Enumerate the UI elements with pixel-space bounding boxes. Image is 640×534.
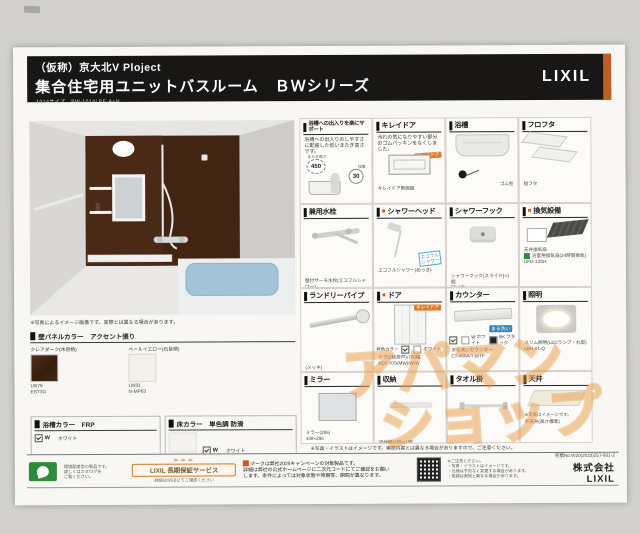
product-cell-entry-support: 浴槽への出入りを楽にサポート 浴槽への出入りのしやすさに配慮した低いまたぎ高さで… bbox=[299, 118, 372, 204]
lid-panel bbox=[521, 132, 568, 148]
product-cell-kirei-door-feature: キレイドア 汚れの気になりやすい部分のゴムパッキンをなくしました。 キレイドア … bbox=[372, 117, 445, 203]
product-code: UFD-13SH bbox=[524, 258, 587, 264]
faucet-knob bbox=[345, 228, 352, 235]
counter-image: まる洗い bbox=[451, 309, 514, 333]
wall-panel-section: 壁パネルカラー アクセント張り クレアダーク(木目柄) LW76 EST3G ベ… bbox=[30, 330, 295, 396]
pipe-shape bbox=[309, 313, 365, 328]
header-bar-icon bbox=[523, 207, 526, 216]
vent-unit-shape bbox=[527, 228, 547, 242]
campaign-line: します。条件によっては対象状態や時期等、期間が異なります。 bbox=[243, 474, 409, 481]
product-code: 438×295 bbox=[306, 435, 369, 441]
shower-head-image: エコフル シャワー bbox=[378, 220, 441, 266]
product-caption: エコフルシャワー(めっき) bbox=[378, 267, 441, 273]
header-bar-icon bbox=[304, 376, 307, 385]
page-background: { "header": { "project": "（仮称）京大北V Ploje… bbox=[0, 0, 640, 534]
ventilation-image bbox=[524, 220, 587, 246]
product-cell-laundry-pipe: ランドリーパイプ (メッキ) LAP-MM2-W (W1本) bbox=[300, 288, 373, 372]
render-caption: ※写真によるイメージ画像です。実際とは異なる場合があります。 bbox=[30, 318, 295, 326]
product-title: 浴槽への出入りを楽にサポート bbox=[308, 121, 368, 133]
product-title: 兼用水栓 bbox=[309, 207, 337, 217]
accent-label: クレアダーク(木目柄) bbox=[30, 346, 110, 353]
accent-swatch-item: クレアダーク(木目柄) LW76 EST3G bbox=[30, 346, 110, 396]
mirror-shape bbox=[318, 393, 356, 421]
kirei-door-badge: キレイドア bbox=[414, 304, 441, 310]
door-panel bbox=[410, 306, 425, 344]
product-title: シャワーフック bbox=[455, 206, 503, 216]
product-title: 照明 bbox=[528, 290, 542, 300]
product-title: ランドリーパイプ bbox=[309, 291, 364, 301]
product-caption: ゴム栓 bbox=[451, 181, 514, 187]
faucet-knob bbox=[311, 232, 318, 239]
floor-color-heading: 床カラー 単色調 防滑 bbox=[177, 418, 244, 428]
faucet-image bbox=[305, 231, 368, 277]
product-title: 天井 bbox=[528, 374, 542, 384]
header-bar-icon bbox=[304, 208, 307, 217]
warranty-label: LIXIL 長期保証サービス bbox=[132, 463, 236, 476]
checkbox-icon bbox=[401, 346, 409, 354]
product-cell-light: 照明 スリム照明(LEDランプ・丸型) LBH-01-Q bbox=[519, 287, 592, 371]
light-plate bbox=[536, 305, 576, 333]
shower-hook-image bbox=[451, 226, 514, 272]
tub-color-label: ホワイト bbox=[58, 435, 77, 442]
vent-fan-shape bbox=[547, 219, 589, 238]
warranty-badge: ≫≫≫ LIXIL 長期保証サービス 詳細はWEBにてご確認ください bbox=[132, 458, 236, 483]
header-bar-icon bbox=[376, 121, 379, 130]
product-caption: 浴室用換気扇(24時間換気) bbox=[532, 253, 586, 259]
white-swatch bbox=[413, 346, 421, 354]
header-bar-icon bbox=[449, 121, 452, 130]
product-title: シャワーヘッド bbox=[387, 206, 435, 216]
eco-mark-logo bbox=[29, 462, 57, 481]
base-swatch bbox=[128, 354, 156, 382]
ceiling-image bbox=[525, 390, 588, 412]
product-code: LBH-01-Q bbox=[524, 345, 587, 351]
frame-color-value: ホワイト bbox=[423, 346, 441, 352]
header-bar: （仮称）京大北V Ploject 集合住宅用ユニットバスルーム ＢＷシリーズ 1… bbox=[27, 54, 611, 103]
shower-hook bbox=[201, 154, 207, 160]
step-30-badge: 30 bbox=[349, 169, 364, 184]
base-label: ベールイエロー(石目柄) bbox=[128, 345, 208, 352]
product-cell-counter: カウンター まる洗い W ホワイト BK ブラック まる洗いカウンター CT-4… bbox=[446, 287, 519, 371]
campaign-marker-icon: ■ bbox=[528, 208, 532, 214]
ceiling-note: ※写真はイメージです。 bbox=[525, 412, 588, 418]
door-section-diagram bbox=[388, 155, 430, 175]
spec-sheet: （仮称）京大北V Ploject 集合住宅用ユニットバスルーム ＢＷシリーズ 1… bbox=[13, 45, 627, 506]
product-caption: スリム照明(LEDランプ・丸型) bbox=[524, 340, 587, 346]
shelf-lower bbox=[90, 211, 112, 214]
storage-shelf-shape bbox=[389, 403, 431, 408]
product-body: 浴槽への出入りのしやすさに配慮した低いまたぎ高さです。 bbox=[304, 137, 367, 155]
hook-shape bbox=[469, 226, 495, 242]
product-caption: キレイドア断面図 bbox=[378, 185, 441, 191]
product-title: 換気設備 bbox=[533, 206, 561, 216]
grid-disclaimer: ※写真・イラストはイメージです。実際内容とは異なる場合がありますので、ご注意くだ… bbox=[311, 444, 593, 452]
light-image bbox=[524, 305, 587, 339]
product-cell-ceiling: 天井 ※写真はイメージです。 平天井(高さ標準) bbox=[519, 371, 592, 443]
frame-color-label: 枠色カラー bbox=[376, 347, 398, 353]
scan-artifact bbox=[24, 6, 40, 14]
header-bar-icon bbox=[377, 291, 380, 300]
warranty-sub: 詳細はWEBにてご確認ください bbox=[132, 477, 236, 483]
product-title: フロフタ bbox=[527, 120, 555, 130]
product-caption: 平天井(高さ標準) bbox=[525, 419, 588, 425]
door-image: キレイドア bbox=[378, 304, 441, 344]
entry-support-diagram: またぎ高さ 450 段差 30 bbox=[304, 157, 367, 197]
product-caption: シャワーフック(スライド)×1個 bbox=[451, 273, 514, 284]
plug-cord bbox=[466, 170, 479, 176]
matagi-450-badge: 450 bbox=[306, 159, 325, 174]
kirei-door-diagram: キレイドア bbox=[377, 154, 440, 184]
footer-note-line: ・色調は実物と異なる場合があります。 bbox=[447, 474, 538, 479]
pipe-flange bbox=[354, 308, 370, 324]
header-bar-icon bbox=[450, 375, 453, 384]
quote-number: 見積No.W20(2023)257-801-2 bbox=[545, 453, 614, 459]
accent-code2: EST3G bbox=[31, 390, 111, 396]
project-name: （仮称）京大北V Ploject bbox=[35, 58, 611, 76]
counter-white-label: W ホワイト bbox=[471, 334, 487, 346]
product-cell-ventilation: ■ 換気設備 天井換気扇 浴室用換気扇(24時間換気) UFD-13SH bbox=[519, 203, 592, 287]
footer: 環境配慮型の製品です。 詳しくはカタログを ご覧ください。 ≫≫≫ LIXIL … bbox=[27, 452, 619, 489]
bath-lid-image bbox=[523, 134, 586, 180]
product-title: 収納 bbox=[382, 375, 396, 385]
eco-note-line: ご覧ください。 bbox=[64, 473, 125, 478]
product-title: カウンター bbox=[455, 290, 489, 300]
qr-code bbox=[416, 457, 440, 481]
product-cell-shower-hook: シャワーフック シャワーフック(スライド)×1個 SF-HB bbox=[446, 203, 519, 287]
maruarai-badge: まる洗い bbox=[489, 325, 512, 332]
white-swatch bbox=[461, 336, 469, 344]
product-title: ドア bbox=[388, 291, 402, 301]
header-bar-icon bbox=[303, 123, 306, 132]
lixil-logo: LIXIL bbox=[542, 68, 591, 86]
eco-green-icon bbox=[524, 253, 530, 259]
counter-ledge bbox=[88, 255, 172, 262]
product-title: キレイドア bbox=[381, 121, 415, 131]
campaign-line: マークは弊社2025キャンペーンの対象製品です。 bbox=[250, 462, 358, 467]
shower-handle bbox=[394, 230, 402, 258]
counter-black-label: BK ブラック bbox=[499, 334, 516, 346]
campaign-marker-icon: ■ bbox=[382, 209, 386, 215]
campaign-note: マークは弊社2025キャンペーンの対象製品です。 詳細は弊社の公式ホームページに… bbox=[243, 460, 409, 481]
light-bulb bbox=[543, 311, 569, 327]
heading-square-icon bbox=[30, 332, 35, 340]
checkbox-icon bbox=[35, 434, 43, 442]
tub-color-heading: 浴槽カラー FRP bbox=[43, 419, 95, 429]
header-bar-icon bbox=[523, 375, 526, 384]
product-cell-shower-head: ■ シャワーヘッド エコフル シャワー エコフルシャワー(めっき) bbox=[373, 203, 446, 287]
door-panel bbox=[395, 306, 411, 344]
ceiling-light bbox=[112, 141, 134, 157]
wall-panel-heading: 壁パネルカラー アクセント張り bbox=[38, 331, 135, 341]
orange-stripe bbox=[603, 54, 611, 100]
product-cell-storage: 収納 収納棚(2段)×1個 SF-10SB-23/N1 bbox=[373, 371, 446, 443]
person-figure bbox=[331, 173, 340, 193]
section-heading: 壁パネルカラー アクセント張り bbox=[30, 330, 295, 343]
header-bar-icon bbox=[304, 292, 307, 301]
product-title: 浴槽 bbox=[454, 120, 468, 130]
header-bar-icon bbox=[450, 291, 453, 300]
product-cell-door: ■ ドア キレイドア 枠色カラー ホワイト ドア(2枚折戸)/700幅 PDT-… bbox=[373, 287, 446, 371]
bottle bbox=[96, 203, 100, 211]
counter-shape bbox=[453, 308, 512, 322]
page-title: 集合住宅用ユニットバスルーム ＢＷシリーズ bbox=[35, 74, 611, 98]
product-cell-towel-bar: タオル掛 TB-450-N bbox=[446, 371, 519, 443]
product-body: 汚れの気になりやすい部分のゴムパッキンをなくしました。 bbox=[377, 134, 440, 152]
product-title: ミラー bbox=[309, 375, 330, 385]
campaign-marker-icon: ■ bbox=[382, 293, 386, 299]
product-cell-bath-lid: フロフタ 組フタ bbox=[518, 117, 591, 203]
product-cell-faucet: 兼用水栓 壁付サーモ水栓(エコフルシャワー) BF-M140T bbox=[300, 204, 373, 288]
tub-color-check: W bbox=[45, 435, 50, 441]
lid-panel bbox=[531, 147, 578, 163]
bathroom-render-art bbox=[29, 120, 295, 315]
product-title: タオル掛 bbox=[455, 374, 483, 384]
laundry-pipe-image bbox=[305, 318, 368, 364]
shelf-upper bbox=[90, 187, 112, 190]
product-grid: 浴槽への出入りを楽にサポート 浴槽への出入りのしやすさに配慮した低いまたぎ高さで… bbox=[299, 117, 592, 444]
ecoful-shower-badge: エコフル シャワー bbox=[418, 250, 442, 267]
ceiling-panel-shape bbox=[527, 390, 586, 406]
product-cell-mirror: ミラー ミラー(295) 438×295 bbox=[300, 372, 373, 444]
bathroom-render bbox=[29, 120, 295, 315]
base-code2: N-MP63 bbox=[128, 389, 208, 395]
black-swatch bbox=[489, 336, 497, 344]
storage-image bbox=[379, 402, 442, 438]
bathtub-image bbox=[450, 134, 513, 180]
checkbox-icon bbox=[449, 336, 457, 344]
product-caption: 壁付サーモ水栓(エコフルシャワー) bbox=[305, 278, 368, 288]
campaign-square-icon bbox=[243, 460, 249, 466]
accent-swatch bbox=[30, 354, 58, 382]
heading-square-icon bbox=[35, 420, 40, 428]
towel-bar-shape bbox=[461, 404, 505, 407]
tub-shape bbox=[455, 134, 509, 156]
mirror bbox=[114, 176, 144, 220]
towel-bar-image bbox=[452, 404, 515, 442]
mirror-image bbox=[306, 393, 369, 429]
header-bar-icon bbox=[377, 207, 380, 216]
header-bar-icon bbox=[450, 207, 453, 216]
product-caption: 収納棚(2段)×1個 bbox=[379, 439, 442, 443]
product-code: CT-460A/T-B/TF bbox=[451, 353, 514, 359]
bath-water bbox=[186, 263, 278, 295]
base-swatch-item: ベールイエロー(石目柄) LW81 N-MP63 bbox=[128, 345, 208, 395]
product-cell-bathtub: 浴槽 ゴム栓 bbox=[445, 117, 518, 203]
heading-square-icon bbox=[169, 420, 174, 428]
floor-swatch bbox=[169, 433, 197, 453]
header-bar-icon bbox=[523, 291, 526, 300]
product-code: PDT-70S(MW)/W-W bbox=[378, 360, 441, 366]
product-caption: 組フタ bbox=[524, 181, 587, 187]
slide-bar bbox=[161, 145, 163, 237]
header-bar-icon bbox=[522, 121, 525, 130]
faucet-bar bbox=[313, 228, 359, 239]
company-name: 株式会社LIXIL bbox=[545, 460, 615, 485]
header-bar-icon bbox=[377, 375, 380, 384]
